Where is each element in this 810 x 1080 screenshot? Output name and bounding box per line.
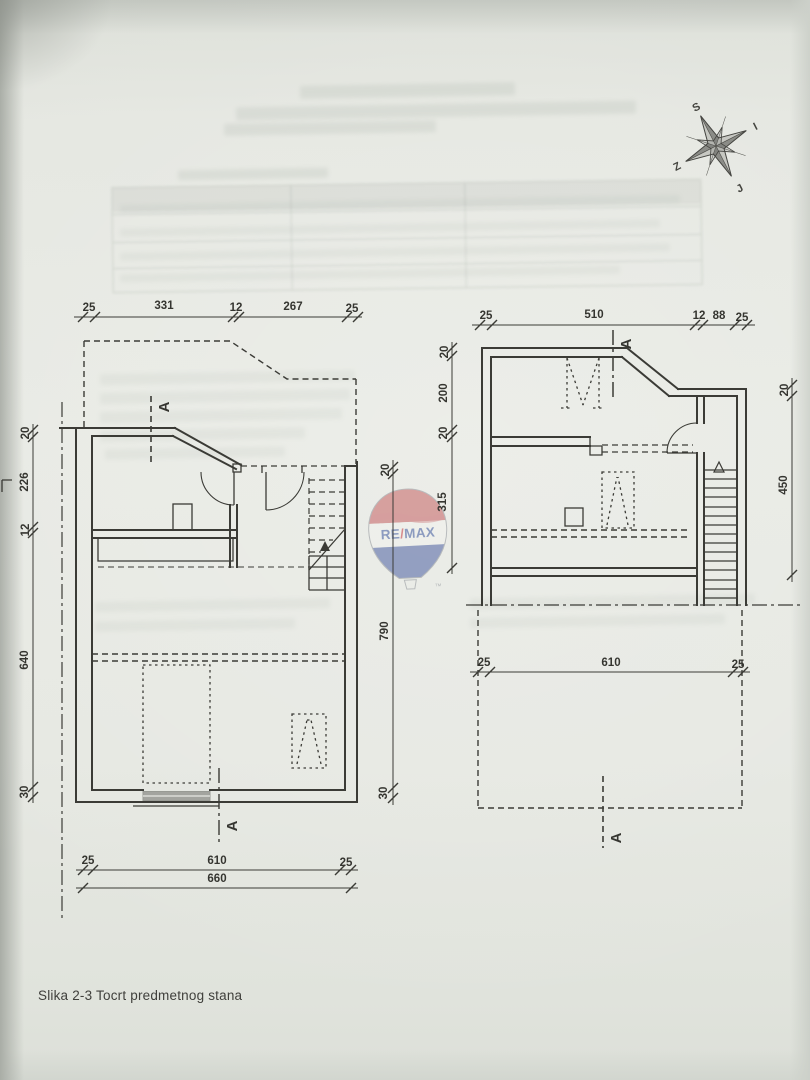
interior-walls [92,504,237,567]
dim-label: 25 [732,659,745,671]
dim-label: 12 [693,310,706,322]
roof-break-lines [491,445,693,537]
floor-plan-drawing: RE/MAX ™ [0,0,810,1080]
dim-label: 20 [438,427,450,440]
dim-label: 450 [778,475,790,494]
stair-direction-arrow [320,541,330,551]
dim-label: 25 [480,310,493,322]
window [133,792,219,807]
dimension-right: 20 450 [778,378,797,582]
section-marker-a-bottom: A [603,776,625,848]
section-label: A [224,820,241,831]
stairwell-wall [697,396,704,605]
door-arc [667,423,697,453]
dim-label: 640 [19,650,31,669]
dim-label: 88 [713,310,726,322]
wardrobe-symbol [561,358,605,408]
left-floor-plan: A A 25 331 12 267 25 25 [2,300,398,918]
dim-label: 20 [439,346,451,359]
compass-south-label: J [735,182,746,195]
interior-walls [491,437,697,576]
dim-label: 20 [20,427,32,440]
page-edge-mark [2,480,12,492]
section-marker-a-top: A [151,396,173,463]
dim-label: 25 [340,857,353,869]
skylight-outline-dashed [143,665,210,783]
dim-label: 610 [601,657,620,669]
dim-label: 660 [207,873,226,885]
dim-label: 790 [379,621,391,640]
dim-label: 25 [83,302,96,314]
dim-label: 200 [438,383,450,402]
wardrobe-symbol [292,714,326,768]
compass-star-minor [691,121,741,171]
dim-label: 25 [346,303,359,315]
dim-label: 12 [20,524,32,537]
compass-rose: S I J Z [652,82,782,217]
dimension-top: 25 331 12 267 25 [74,300,363,322]
dim-label: 12 [230,302,243,314]
section-marker-a-bottom: A [219,768,241,844]
remax-wordmark: RE/MAX [380,525,435,543]
dimension-bottom: 25 610 25 660 [76,855,358,893]
dim-label: 30 [19,786,31,799]
section-label: A [608,832,625,843]
dim-label: 30 [378,787,390,800]
dim-label: 315 [437,492,449,512]
compass-west-label: Z [672,160,684,174]
dim-label: 25 [736,312,749,324]
balloon-basket [404,580,416,590]
dim-label: 25 [478,657,491,669]
dim-label: 20 [779,384,791,397]
dim-label: 226 [19,472,31,491]
dim-label: 20 [380,464,392,477]
wardrobe-symbol [602,472,634,528]
compass-east-label: I [752,121,760,133]
outer-walls [482,348,746,605]
chimney-symbol [565,508,583,526]
trademark-symbol: ™ [435,583,442,590]
compass-north-label: S [690,101,702,115]
dimension-left: 20 226 12 640 30 [19,424,38,803]
outer-walls [60,428,357,802]
staircase [309,478,345,590]
dim-label: 331 [154,300,174,312]
dimension-bottom: 25 610 25 [470,657,750,677]
dim-label: 610 [207,855,226,867]
dimension-top: 25 510 12 88 25 [472,309,755,330]
dim-label: 25 [82,855,95,867]
staircase [704,462,737,598]
roof-projection-dashed [478,610,742,808]
roof-outline-dashed [84,341,356,464]
roof-break-lines [92,567,345,661]
scanned-page-photo: RE/MAX ™ [0,0,810,1080]
dim-label: 510 [584,309,603,321]
right-floor-plan: A A 25 510 12 88 25 20 [437,309,800,848]
section-label: A [156,401,173,412]
figure-caption: Slika 2-3 Tocrt predmetnog stana [38,988,242,1003]
dim-label: 267 [283,301,302,313]
section-label: A [618,338,635,349]
